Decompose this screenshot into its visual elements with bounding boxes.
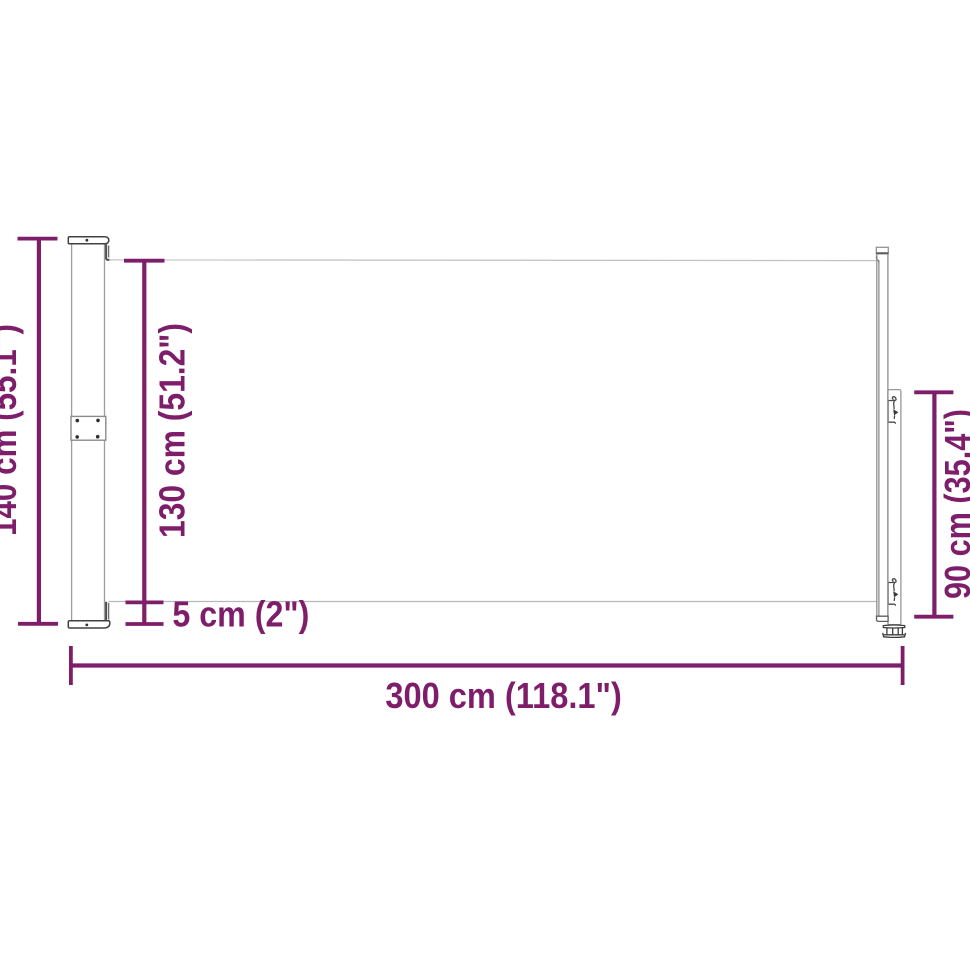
- svg-text:130 cm (51.2"): 130 cm (51.2"): [152, 323, 193, 538]
- svg-text:90 cm (35.4"): 90 cm (35.4"): [937, 409, 970, 599]
- svg-text:140 cm (55.1"): 140 cm (55.1"): [0, 324, 24, 536]
- svg-text:300 cm (118.1"): 300 cm (118.1"): [385, 675, 622, 716]
- svg-text:5 cm (2"): 5 cm (2"): [172, 594, 309, 635]
